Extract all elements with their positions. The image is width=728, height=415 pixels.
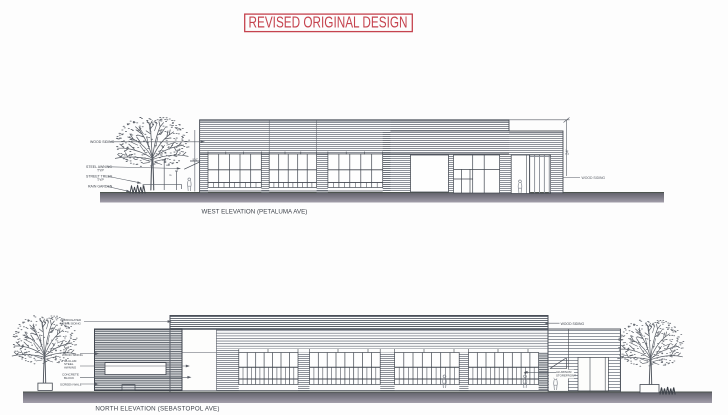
- svg-text:TYP: TYP: [97, 178, 104, 182]
- svg-text:TYP: TYP: [97, 169, 104, 173]
- svg-text:REVISED ORIGINAL DESIGN: REVISED ORIGINAL DESIGN: [249, 14, 408, 31]
- svg-text:AWNING: AWNING: [64, 366, 77, 370]
- svg-text:24': 24': [565, 149, 570, 155]
- svg-text:NORTH ELEVATION (SEBASTOPOL AV: NORTH ELEVATION (SEBASTOPOL AVE): [95, 406, 219, 413]
- svg-text:STOREFRONT: STOREFRONT: [556, 374, 576, 378]
- svg-text:SCREEN WALL: SCREEN WALL: [60, 383, 82, 387]
- svg-text:WOOD SIDING: WOOD SIDING: [561, 322, 585, 326]
- svg-text:WEST ELEVATION (PETALUMA AVE): WEST ELEVATION (PETALUMA AVE): [202, 209, 308, 216]
- svg-text:9'-0": 9'-0": [160, 152, 164, 157]
- svg-text:METAL SIDING: METAL SIDING: [60, 322, 82, 326]
- svg-text:BLOCK: BLOCK: [64, 376, 74, 380]
- svg-text:9'-0": 9'-0": [193, 158, 199, 162]
- svg-text:WOOD SIDING: WOOD SIDING: [582, 176, 606, 180]
